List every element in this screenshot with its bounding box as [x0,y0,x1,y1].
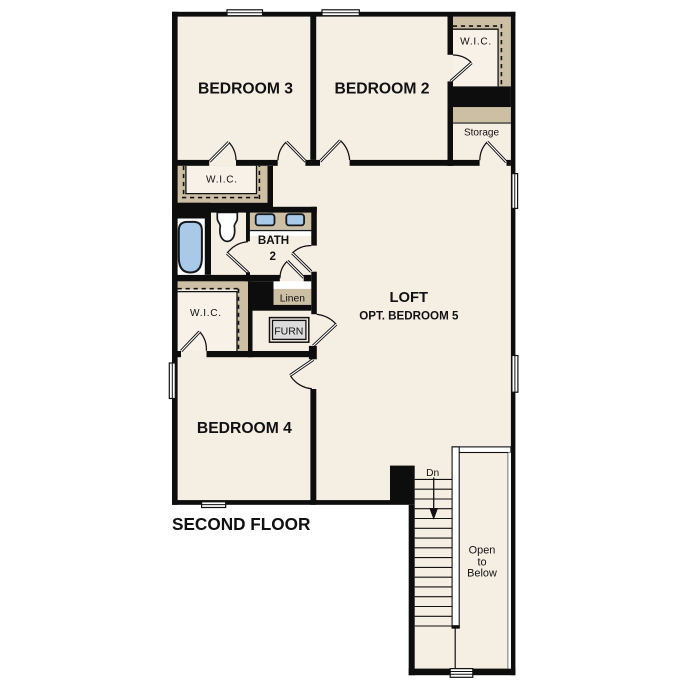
svg-text:W.I.C.: W.I.C. [206,174,238,185]
svg-text:LOFT: LOFT [389,290,428,306]
svg-text:BATH: BATH [258,234,289,247]
svg-text:Below: Below [467,568,497,580]
svg-text:Open: Open [469,545,496,557]
svg-text:BEDROOM 3: BEDROOM 3 [198,81,293,98]
svg-text:SECOND FLOOR: SECOND FLOOR [172,514,311,534]
svg-text:BEDROOM 2: BEDROOM 2 [334,81,429,98]
svg-text:W.I.C.: W.I.C. [190,308,222,319]
svg-text:FURN: FURN [274,325,303,337]
svg-text:Linen: Linen [280,293,305,304]
svg-text:W.I.C.: W.I.C. [460,36,492,47]
svg-text:Storage: Storage [464,128,499,139]
svg-text:BEDROOM 4: BEDROOM 4 [197,420,292,437]
svg-text:Dn: Dn [426,468,439,479]
svg-text:OPT. BEDROOM 5: OPT. BEDROOM 5 [359,310,459,323]
svg-text:2: 2 [269,250,275,263]
